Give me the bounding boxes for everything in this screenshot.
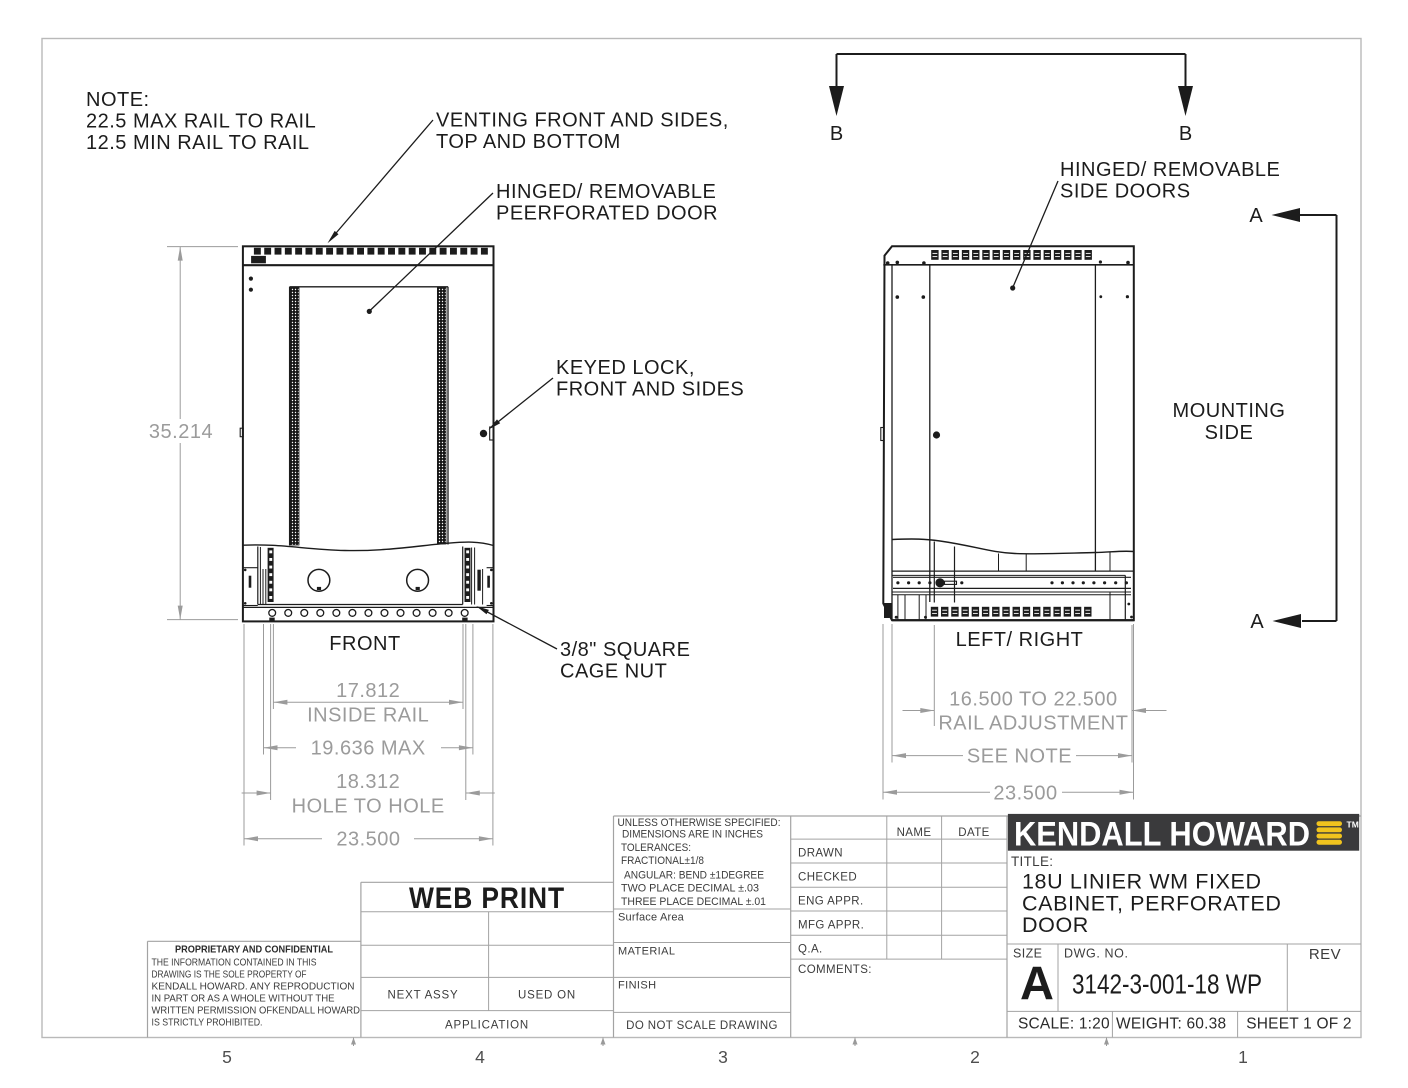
svg-text:REV: REV [1309, 946, 1341, 963]
svg-text:DRAWN: DRAWN [798, 848, 843, 860]
svg-text:A: A [1020, 957, 1054, 1010]
svg-text:FRACTIONAL±1/8: FRACTIONAL±1/8 [621, 855, 704, 867]
svg-text:HINGED/ REMOVABLE: HINGED/ REMOVABLE [496, 181, 716, 203]
svg-text:DOOR: DOOR [1022, 913, 1089, 937]
svg-text:NEXT ASSY: NEXT ASSY [388, 990, 459, 1002]
svg-text:TM: TM [1347, 820, 1359, 830]
svg-text:HOLE TO HOLE: HOLE TO HOLE [292, 796, 445, 818]
svg-text:FINISH: FINISH [618, 980, 656, 992]
svg-text:TWO PLACE DECIMAL ±.03: TWO PLACE DECIMAL ±.03 [621, 883, 759, 895]
svg-text:SIDE DOORS: SIDE DOORS [1060, 181, 1191, 203]
svg-text:FRONT AND SIDES: FRONT AND SIDES [556, 379, 744, 401]
svg-text:PROPRIETARY AND CONFIDENTIAL: PROPRIETARY AND CONFIDENTIAL [175, 944, 334, 956]
svg-text:Surface Area: Surface Area [618, 912, 685, 924]
svg-text:MFG APPR.: MFG APPR. [798, 920, 864, 932]
svg-text:HINGED/ REMOVABLE: HINGED/ REMOVABLE [1060, 159, 1280, 181]
svg-text:A: A [1250, 611, 1264, 633]
svg-text:SIDE: SIDE [1205, 422, 1254, 444]
svg-text:23.500: 23.500 [993, 783, 1057, 805]
svg-text:DWG. NO.: DWG. NO. [1064, 947, 1129, 961]
svg-text:16.500 TO 22.500: 16.500 TO 22.500 [949, 689, 1118, 711]
svg-text:TOP AND BOTTOM: TOP AND BOTTOM [436, 131, 621, 153]
svg-text:19.636 MAX: 19.636 MAX [311, 738, 426, 760]
svg-text:IN PART OR AS A WHOLE WITHOUT: IN PART OR AS A WHOLE WITHOUT THE [152, 994, 335, 1005]
svg-text:4: 4 [475, 1047, 485, 1067]
svg-text:22.5 MAX RAIL TO RAIL: 22.5 MAX RAIL TO RAIL [86, 111, 316, 133]
svg-text:APPLICATION: APPLICATION [445, 1020, 529, 1032]
svg-text:2: 2 [970, 1047, 980, 1067]
svg-text:VENTING FRONT AND SIDES,: VENTING FRONT AND SIDES, [436, 110, 729, 132]
svg-text:DATE: DATE [958, 827, 989, 839]
svg-text:MATERIAL: MATERIAL [618, 946, 675, 958]
svg-text:SCALE: 1:20: SCALE: 1:20 [1018, 1016, 1110, 1033]
svg-text:UNLESS OTHERWISE SPECIFIED:: UNLESS OTHERWISE SPECIFIED: [618, 817, 781, 829]
svg-text:17.812: 17.812 [336, 680, 400, 702]
svg-text:CABINET, PERFORATED: CABINET, PERFORATED [1022, 891, 1281, 915]
svg-text:WRITTEN PERMISSION OFKENDALL H: WRITTEN PERMISSION OFKENDALL HOWARD [152, 1006, 361, 1017]
svg-text:IS STRICTLY PROHIBITED.: IS STRICTLY PROHIBITED. [152, 1018, 263, 1029]
svg-text:NAME: NAME [897, 827, 932, 839]
svg-text:DIMENSIONS ARE IN INCHES: DIMENSIONS ARE IN INCHES [622, 829, 763, 841]
svg-text:3142-3-001-18 WP: 3142-3-001-18 WP [1072, 969, 1262, 1000]
svg-text:FRONT: FRONT [329, 633, 400, 655]
svg-text:SHEET 1 OF 2: SHEET 1 OF 2 [1246, 1016, 1351, 1033]
svg-text:LEFT/ RIGHT: LEFT/ RIGHT [956, 629, 1084, 651]
svg-text:SEE NOTE: SEE NOTE [967, 746, 1072, 768]
svg-text:WEB PRINT: WEB PRINT [409, 882, 565, 915]
svg-text:RAIL ADJUSTMENT: RAIL ADJUSTMENT [938, 713, 1128, 735]
svg-text:B: B [1179, 123, 1192, 145]
svg-text:PEERFORATED DOOR: PEERFORATED DOOR [496, 203, 718, 225]
svg-text:THE INFORMATION CONTAINED IN T: THE INFORMATION CONTAINED IN THIS [152, 958, 317, 969]
svg-text:TOLERANCES:: TOLERANCES: [621, 842, 691, 854]
svg-text:23.500: 23.500 [336, 829, 400, 851]
svg-text:1: 1 [1238, 1047, 1248, 1067]
svg-text:TITLE:: TITLE: [1011, 854, 1053, 869]
svg-text:WEIGHT: 60.38: WEIGHT: 60.38 [1116, 1016, 1226, 1033]
svg-text:Q.A.: Q.A. [798, 944, 823, 956]
svg-text:A: A [1249, 205, 1263, 227]
svg-text:KEYED LOCK,: KEYED LOCK, [556, 357, 695, 379]
svg-text:NOTE:: NOTE: [86, 89, 150, 111]
svg-text:18.312: 18.312 [336, 771, 400, 793]
svg-text:18U LINIER WM FIXED: 18U LINIER WM FIXED [1022, 870, 1262, 894]
svg-text:35.214: 35.214 [149, 421, 213, 443]
svg-text:3/8" SQUARE: 3/8" SQUARE [560, 639, 690, 661]
svg-text:CHECKED: CHECKED [798, 872, 857, 884]
svg-text:12.5 MIN RAIL TO RAIL: 12.5 MIN RAIL TO RAIL [86, 132, 310, 154]
svg-text:KENDALL HOWARD. ANY REPRODUCT: KENDALL HOWARD. ANY REPRODUCTION [152, 982, 355, 993]
svg-text:3: 3 [718, 1047, 728, 1067]
svg-text:KENDALL HOWARD: KENDALL HOWARD [1014, 816, 1310, 854]
svg-text:ANGULAR: BEND ±1DEGREE: ANGULAR: BEND ±1DEGREE [624, 870, 764, 882]
svg-text:DRAWING IS THE SOLE PROPERTY O: DRAWING IS THE SOLE PROPERTY OF [152, 970, 307, 981]
svg-text:USED ON: USED ON [518, 990, 576, 1002]
svg-text:CAGE NUT: CAGE NUT [560, 661, 667, 683]
svg-text:ENG APPR.: ENG APPR. [798, 896, 864, 908]
svg-text:DO NOT SCALE DRAWING: DO NOT SCALE DRAWING [626, 1020, 778, 1032]
svg-text:B: B [830, 123, 843, 145]
svg-text:5: 5 [222, 1047, 232, 1067]
svg-text:INSIDE RAIL: INSIDE RAIL [307, 705, 429, 727]
svg-text:THREE PLACE DECIMAL ±.01: THREE PLACE DECIMAL ±.01 [621, 896, 766, 908]
svg-text:COMMENTS:: COMMENTS: [798, 964, 872, 976]
svg-text:MOUNTING: MOUNTING [1173, 400, 1286, 422]
